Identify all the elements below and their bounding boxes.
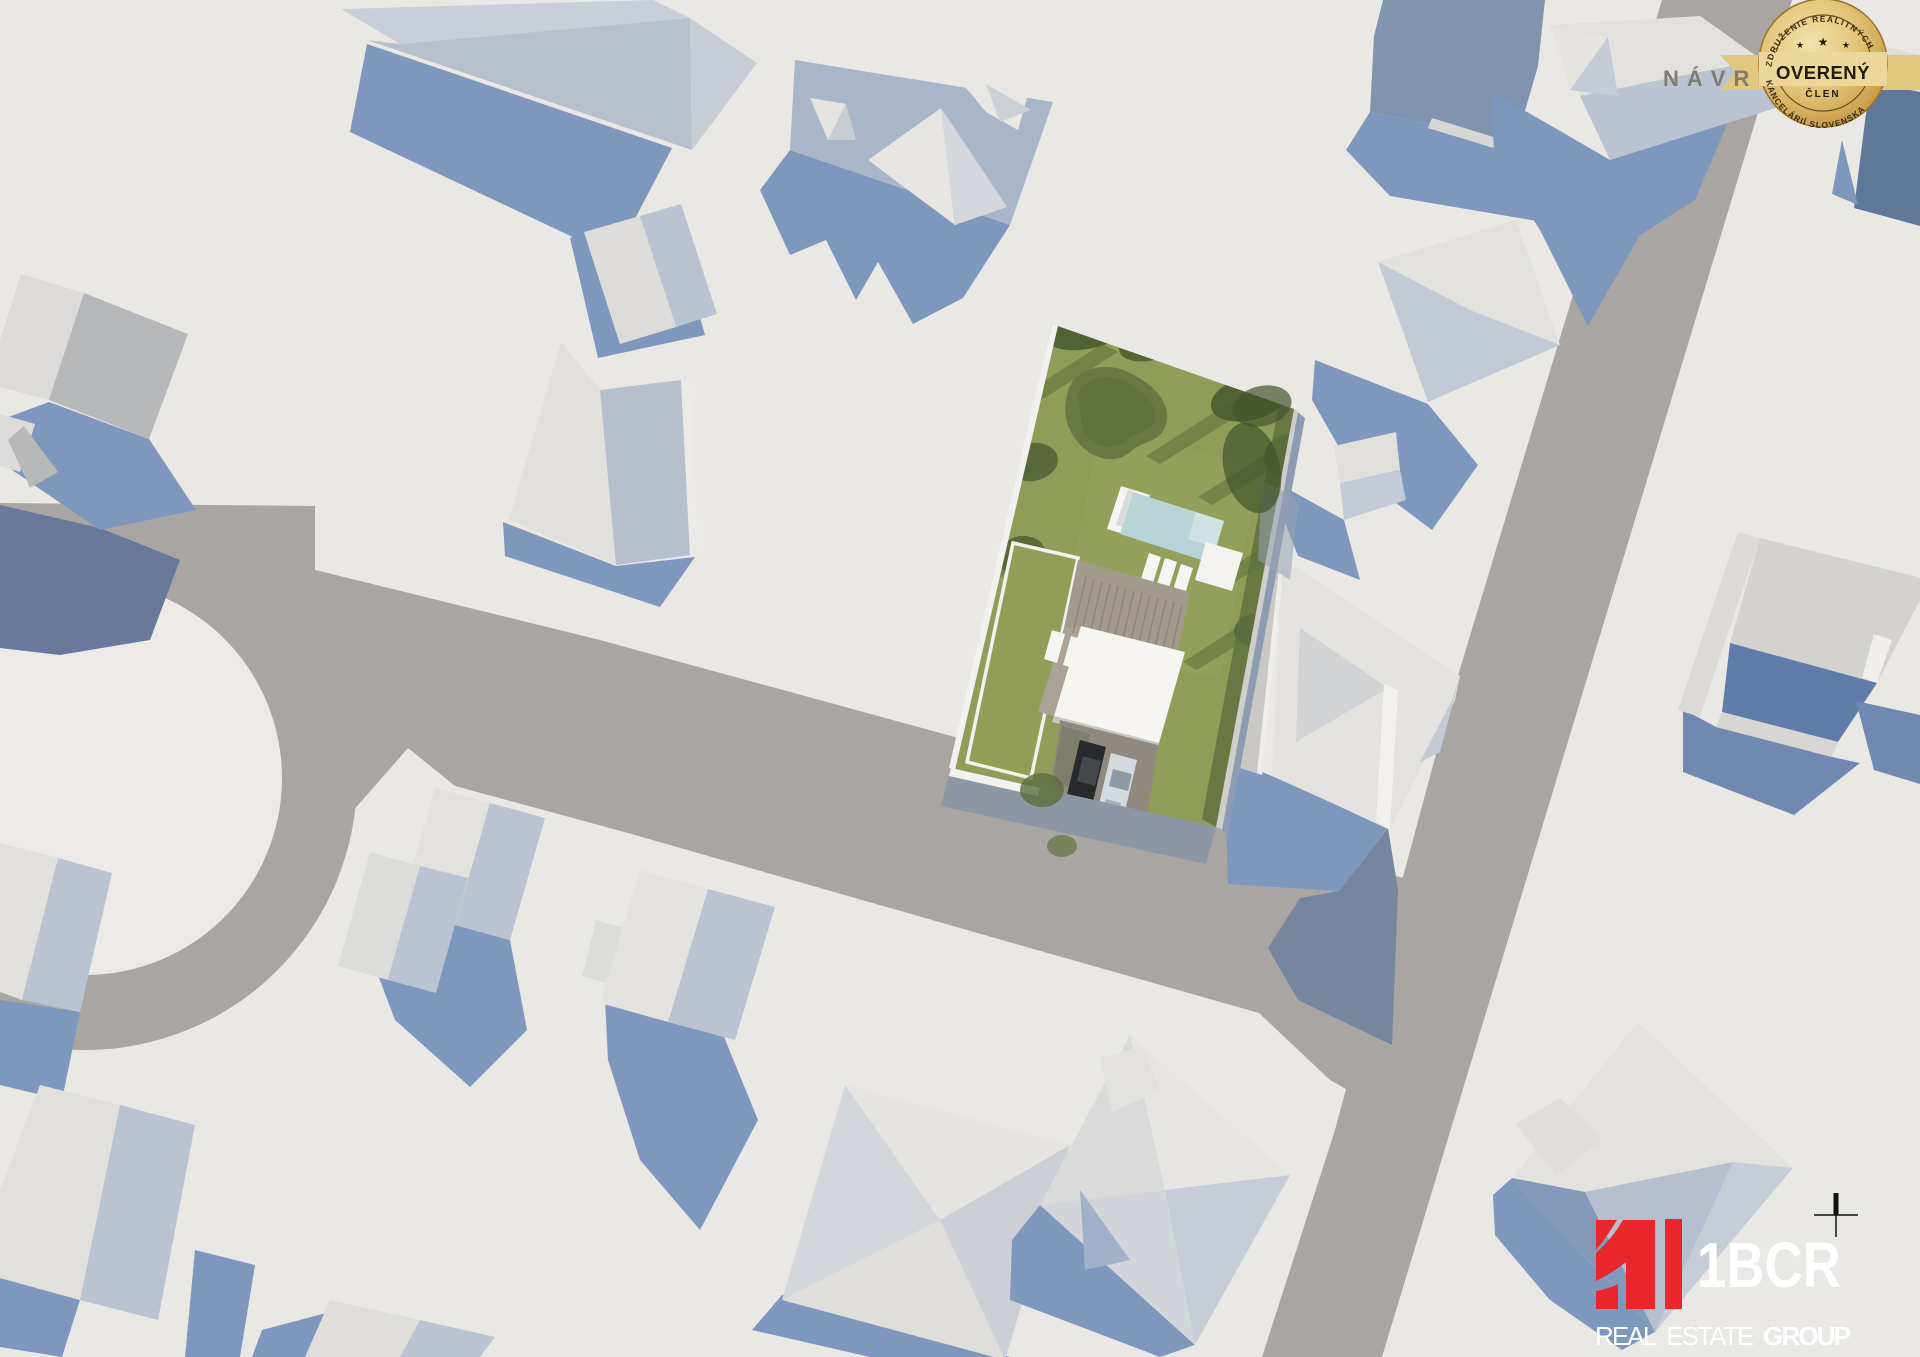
svg-text:ČLEN: ČLEN: [1805, 87, 1840, 100]
svg-text:★: ★: [1796, 40, 1804, 50]
svg-text:OVERENÝ: OVERENÝ: [1776, 62, 1870, 83]
svg-text:★: ★: [1818, 35, 1829, 49]
svg-text:★: ★: [1842, 40, 1850, 50]
svg-text:1BCR: 1BCR: [1697, 1229, 1841, 1301]
svg-text:REAL ESTATE GROUP: REAL ESTATE GROUP: [1595, 1321, 1851, 1351]
